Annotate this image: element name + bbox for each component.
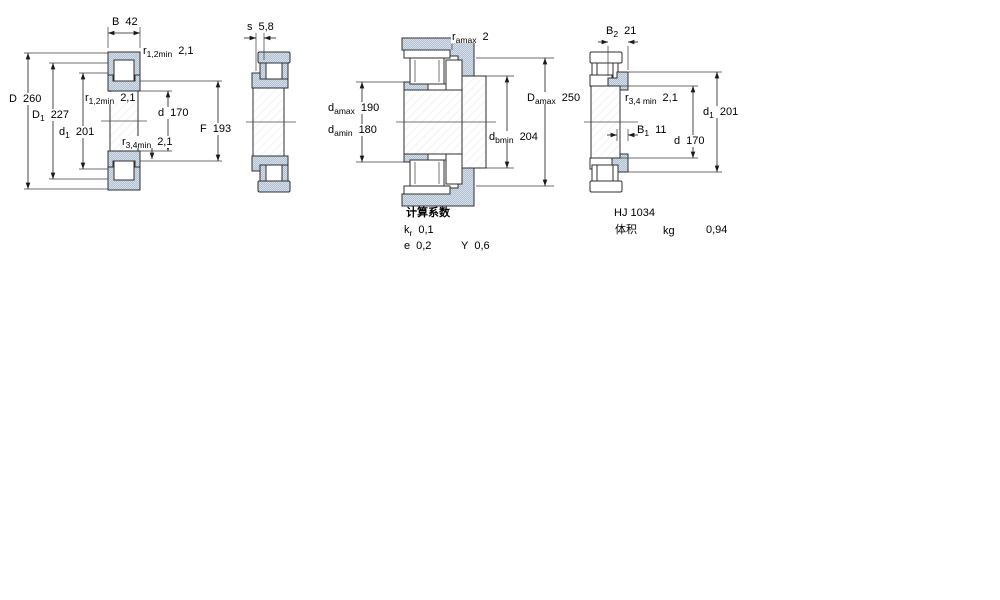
dim-label-Damax: Damax250 xyxy=(526,92,581,104)
product-designation: HJ 1034 xyxy=(614,207,655,219)
dim-label-damax: damax190 xyxy=(327,102,380,114)
dim-label-r34min: r3,4 min2,1 xyxy=(624,92,679,104)
dim-label-ramax: ramax2 xyxy=(451,31,490,43)
dim-label-d1-hj: d1201 xyxy=(702,106,739,118)
view-abutments xyxy=(356,38,554,206)
dim-label-B2: B221 xyxy=(606,25,636,37)
dim-label-d1: d1201 xyxy=(58,126,95,138)
dim-label-d-hj: d170 xyxy=(673,135,705,147)
factor-y: Y0,6 xyxy=(461,240,490,252)
dim-label-r12-top: r1,2min2,1 xyxy=(143,45,193,57)
dim-label-D1: D1227 xyxy=(31,109,70,121)
dim-label-B: B42 xyxy=(112,16,138,28)
dim-label-B1: B111 xyxy=(637,124,667,136)
dim-label-damin: damin180 xyxy=(327,124,378,136)
mass-label: 体积 xyxy=(615,224,637,236)
bearing-drawing-page: B42 r1,2min2,1 D260 D1227 d1201 r1,2min2… xyxy=(0,0,1000,600)
factor-e: e0,2 xyxy=(404,240,431,252)
dim-label-r34: r3,4min2,1 xyxy=(121,136,173,148)
calculation-factors-title: 计算系数 xyxy=(406,207,450,219)
mass-value: 0,94 xyxy=(706,224,727,236)
view-side-profile xyxy=(244,33,296,192)
dim-label-F: F193 xyxy=(199,123,232,135)
technical-drawing xyxy=(0,0,1000,600)
dim-label-r12-mid: r1,2min2,1 xyxy=(84,92,136,104)
dim-label-D: D260 xyxy=(8,93,42,105)
dim-label-s: s5,8 xyxy=(247,21,274,33)
factor-kr: kr0,1 xyxy=(404,224,434,236)
dim-label-dbmin: dbmin204 xyxy=(488,131,539,143)
mass-unit: kg xyxy=(663,225,675,237)
dim-label-d: d170 xyxy=(157,107,189,119)
